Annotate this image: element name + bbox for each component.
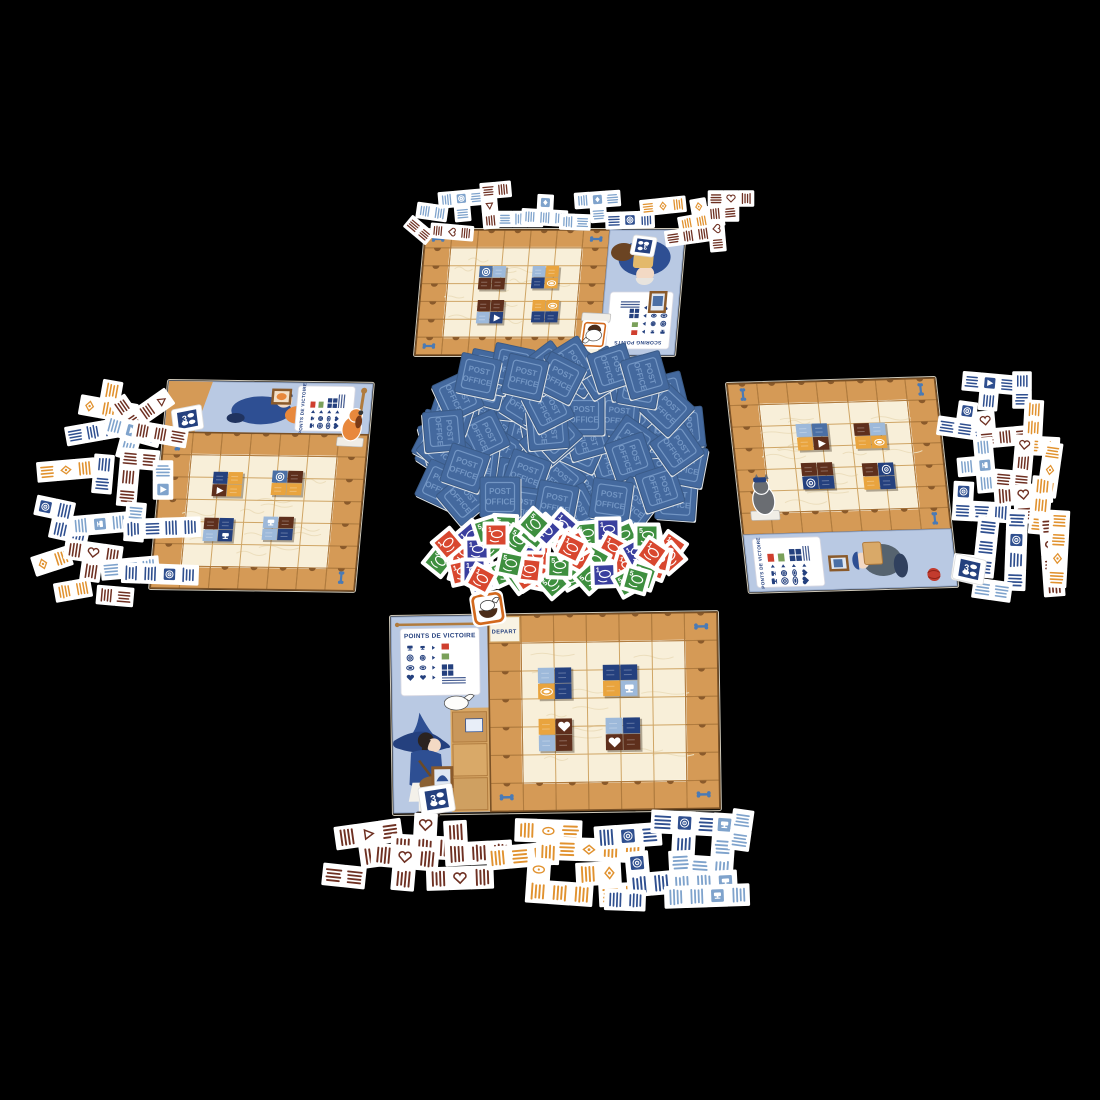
svg-text:DEPART: DEPART <box>492 629 517 635</box>
svg-text:POINTS DE VICTOIRE: POINTS DE VICTOIRE <box>404 632 476 640</box>
